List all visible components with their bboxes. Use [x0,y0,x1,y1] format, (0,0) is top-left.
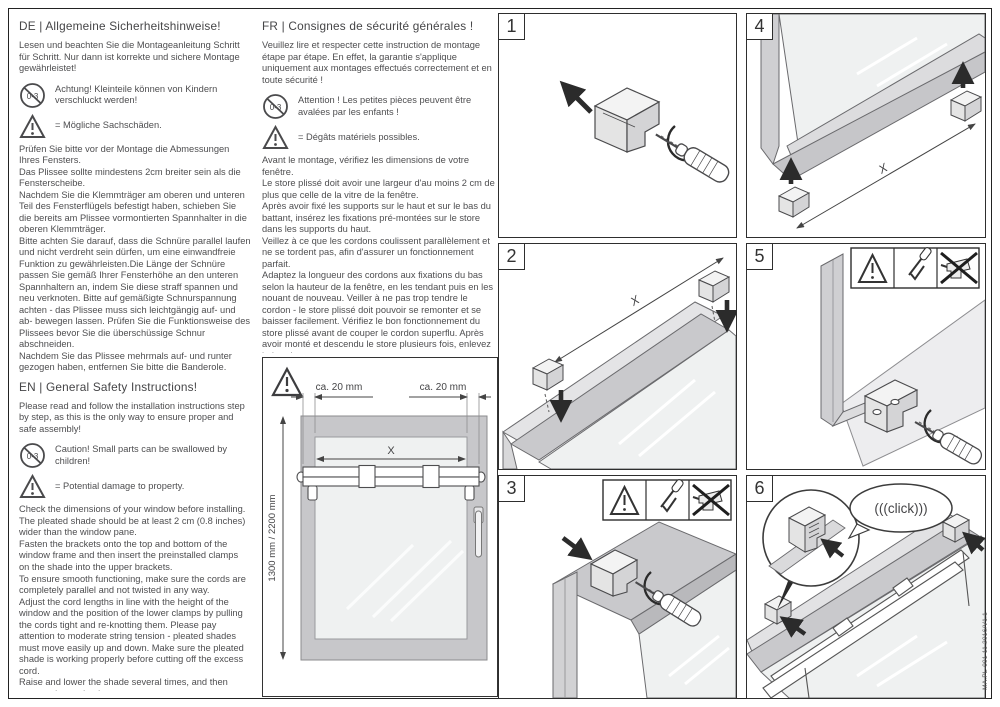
age-restriction-icon: 0-3 [262,93,289,120]
de-para-4: Nachdem Sie das Plissee mehrmals auf- un… [19,351,251,374]
step-4-illustration: X [747,14,985,237]
fr-caution-text: Attention ! Les petites pièces peuvent ê… [298,95,496,118]
svg-text:(((click))): (((click))) [874,501,927,516]
warning-triangle-icon [262,125,289,150]
section-en: EN | General Safety Instructions! Please… [19,380,251,691]
en-damage-row: = Potential damage to property. [19,474,251,499]
en-intro: Please read and follow the installation … [19,401,251,436]
column-fr: FR | Consignes de sécurité générales ! V… [262,15,496,353]
en-damage-text: = Potential damage to property. [55,481,251,493]
bracket-part [699,271,729,302]
de-caution-text: Achtung! Kleinteile können von Kindern v… [55,84,251,107]
step-panel-2: 2 X [498,243,737,470]
age-restriction-icon: 0-3 [19,442,46,469]
en-para-3: To ensure smooth functioning, make sure … [19,574,251,597]
step-3-illustration [499,476,736,698]
svg-text:ca. 20 mm: ca. 20 mm [316,382,363,393]
step-5-illustration [747,244,985,469]
fr-caution-row: 0-3 Attention ! Les petites pièces peuve… [262,93,496,120]
fr-para-4: Adaptez la longueur des cordons aux fixa… [262,270,496,353]
tool-warning-strip [851,246,979,288]
lower-clamp [308,486,317,500]
tool-warning-strip [603,478,731,520]
fr-damage-text: = Dégâts matériels possibles. [298,132,496,144]
column-de-en: DE | Allgemeine Sicherheitshinweise! Les… [19,15,251,691]
de-damage-text: = Mögliche Sachschäden. [55,120,251,132]
lower-clamp [465,486,474,500]
step-number: 3 [499,476,525,502]
age-restriction-icon: 0-3 [19,82,46,109]
warning-triangle-icon [19,474,46,499]
direction-arrow [565,86,591,112]
warning-triangle-icon [273,369,301,395]
step-2-illustration: X [499,244,736,469]
height-dimension: 1300 mm / 2200 mm [267,417,283,659]
step-panel-5: 5 [746,243,986,470]
section-fr: FR | Consignes de sécurité générales ! V… [262,19,496,353]
step-number: 2 [499,244,525,270]
step-number: 6 [747,476,773,502]
magnifier-detail [763,490,859,586]
fr-para-0: Avant le montage, vérifiez les dimension… [262,155,496,178]
en-para-5: Raise and lower the shade several times,… [19,677,251,691]
fr-para-1: Le store plissé doit avoir une largeur d… [262,178,496,201]
svg-text:0-3: 0-3 [270,103,282,112]
en-para-2: Fasten the brackets onto the top and bot… [19,539,251,574]
fr-para-2: Après avoir fixé les supports sur le hau… [262,201,496,236]
warning-triangle-icon [19,114,46,139]
window-measurement-illustration: X ca. 20 mm ca. 20 mm 1300 mm / 2200 mm [263,358,497,696]
step-6-illustration: (((click))) [747,476,985,698]
step-number: 1 [499,14,525,40]
svg-text:X: X [387,445,395,457]
bracket-part [951,91,981,121]
section-title-en: EN | General Safety Instructions! [19,380,251,394]
packaging-strap [423,466,439,488]
de-para-1: Das Plissee sollte mindestens 2cm breite… [19,167,251,190]
en-para-0: Check the dimensions of your window befo… [19,504,251,516]
svg-text:ca. 20 mm: ca. 20 mm [420,382,467,393]
measurement-diagram: X ca. 20 mm ca. 20 mm 1300 mm / 2200 mm [262,357,498,697]
svg-text:1300 mm / 2200 mm: 1300 mm / 2200 mm [267,494,278,581]
svg-text:0-3: 0-3 [27,92,39,101]
window-handle [474,507,483,557]
document-code: MA.PL-001 11.2016/V1.1 [982,612,989,690]
en-para-1: The pleated shade should be at least 2 c… [19,516,251,539]
section-title-de: DE | Allgemeine Sicherheitshinweise! [19,19,251,33]
de-para-0: Prüfen Sie bitte vor der Montage die Abm… [19,144,251,167]
bracket-part [533,359,563,390]
manual-page: DE | Allgemeine Sicherheitshinweise! Les… [8,8,992,699]
bracket-part [595,88,659,152]
en-caution-text: Caution! Small parts can be swallowed by… [55,444,251,467]
step-number: 5 [747,244,773,270]
window-illustration [761,14,985,180]
step-panel-1: 1 [498,13,737,238]
step-panel-6: 6 [746,475,986,699]
fr-damage-row: = Dégâts matériels possibles. [262,125,496,150]
en-caution-row: 0-3 Caution! Small parts can be swallowe… [19,442,251,469]
fr-intro: Veuillez lire et respecter cette instruc… [262,40,496,86]
de-caution-row: 0-3 Achtung! Kleinteile können von Kinde… [19,82,251,109]
step-1-illustration [499,14,736,237]
screwdriver-icon [651,127,731,185]
step-number: 4 [747,14,773,40]
step-panel-3: 3 [498,475,737,699]
de-para-3: Bitte achten Sie darauf, dass die Schnür… [19,236,251,351]
step-panel-4: 4 [746,13,986,238]
de-intro: Lesen und beachten Sie die Montageanleit… [19,40,251,75]
fr-para-3: Veillez à ce que les cordons coulissent … [262,236,496,271]
bracket-part [779,187,809,217]
svg-text:X: X [627,292,643,309]
svg-text:0-3: 0-3 [27,452,39,461]
de-damage-row: = Mögliche Sachschäden. [19,114,251,139]
slide-arrow [563,538,587,556]
en-para-4: Adjust the cord lengths in line with the… [19,597,251,678]
section-de: DE | Allgemeine Sicherheitshinweise! Les… [19,19,251,374]
packaging-strap [359,466,375,488]
section-title-fr: FR | Consignes de sécurité générales ! [262,19,496,33]
de-para-2: Nachdem Sie die Klemmträger am oberen un… [19,190,251,236]
